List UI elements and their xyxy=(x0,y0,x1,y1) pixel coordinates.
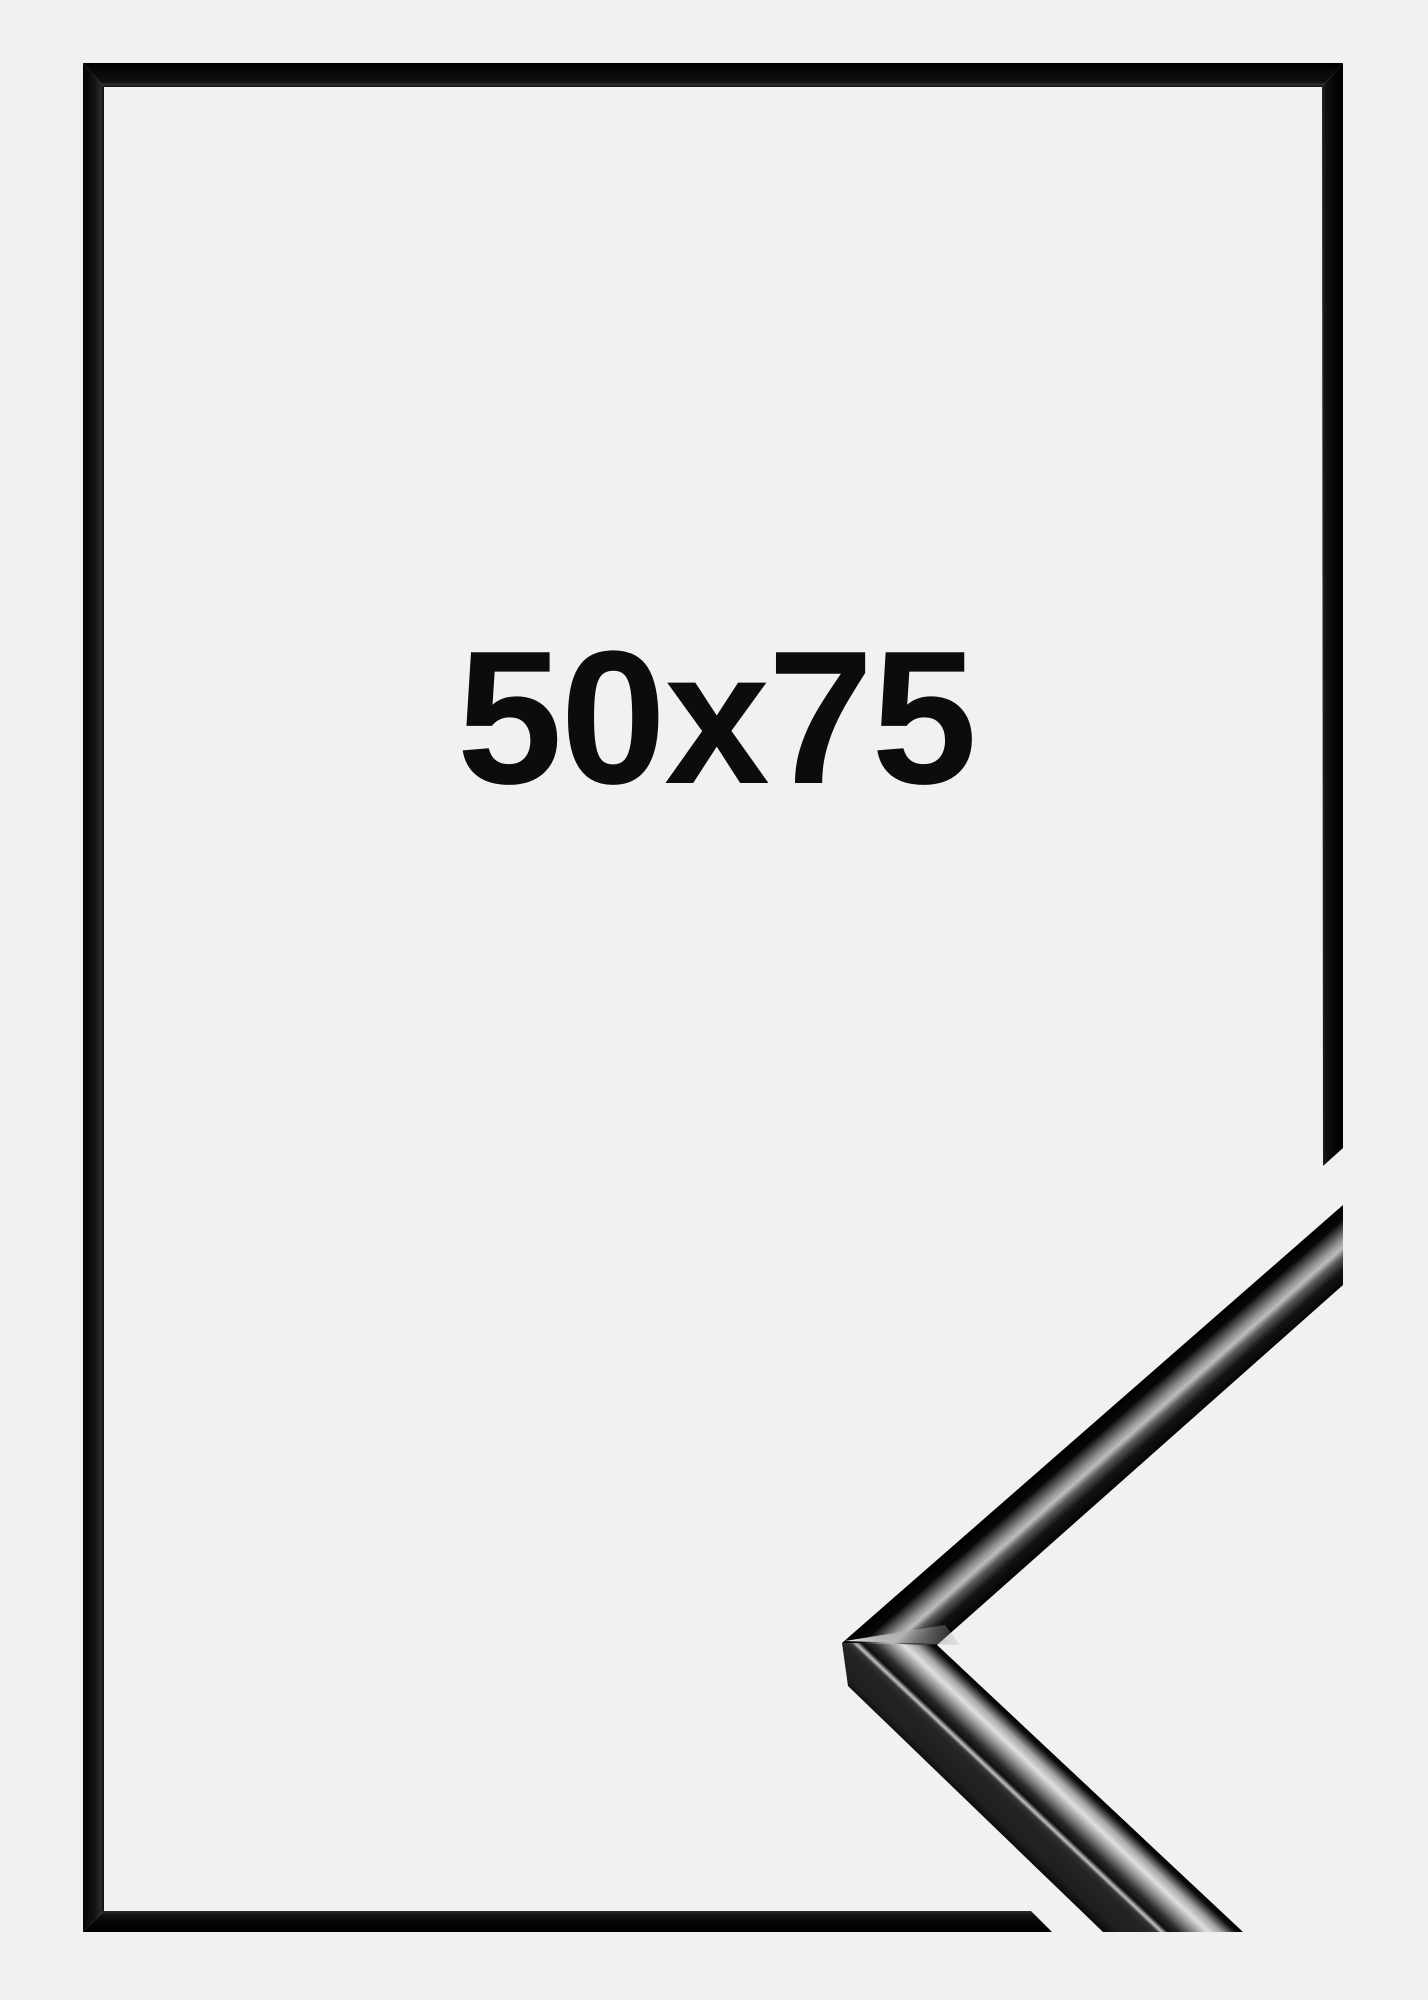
background xyxy=(0,0,1428,2000)
frame-bottom-bar xyxy=(83,1911,1052,1932)
size-label: 50x75 xyxy=(457,612,975,824)
frame-left-bar xyxy=(83,63,104,1932)
frame-top-bar xyxy=(83,63,1343,87)
frame-right-bar xyxy=(1322,63,1343,1166)
frame-size-graphic: 50x75 xyxy=(0,0,1428,2000)
product-image: 50x75 xyxy=(0,0,1428,2000)
